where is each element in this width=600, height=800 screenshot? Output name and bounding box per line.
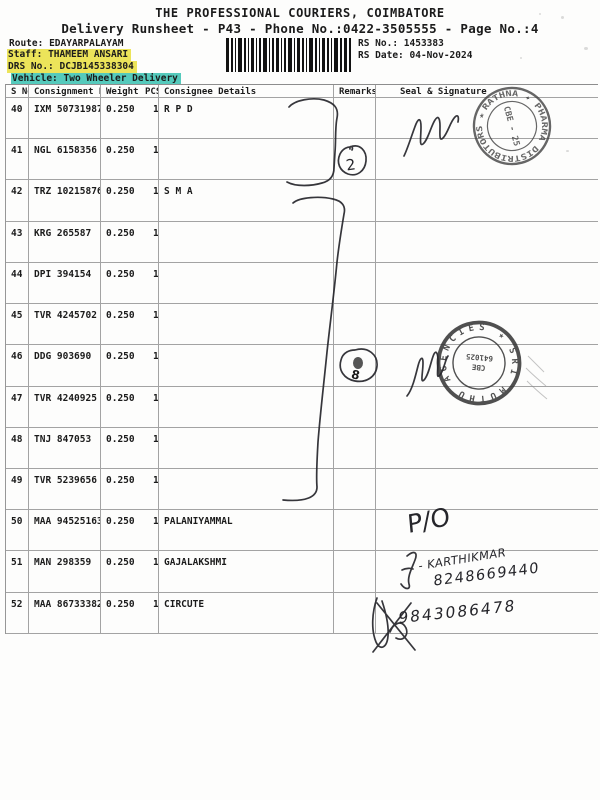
weight-value: 0.250 (106, 557, 135, 568)
cell-consignment-no: DDG 903690 (29, 345, 101, 385)
weight-value: 0.250 (106, 516, 135, 527)
cell-weight-pcs: 0.2501 (101, 98, 159, 138)
cell-weight-pcs: 0.2501 (101, 428, 159, 468)
cell-consignee-details (159, 428, 334, 468)
cell-remarks (334, 593, 376, 633)
cell-weight-pcs: 0.2501 (101, 263, 159, 303)
cell-consignment-no: TVR 5239656 (29, 469, 101, 509)
rs-no-value: 1453383 (404, 38, 444, 49)
scan-speck (539, 13, 541, 15)
cell-s-no: 45 (6, 304, 29, 344)
cell-s-no: 50 (6, 510, 29, 550)
cell-remarks (334, 263, 376, 303)
cell-consignee-details: S M A (159, 180, 334, 220)
cell-remarks (334, 551, 376, 591)
cell-s-no: 42 (6, 180, 29, 220)
rs-no-label: RS No.: (358, 38, 398, 49)
cell-seal-signature (376, 263, 597, 303)
staff-line: Staff: THAMEEM ANSARI (7, 49, 131, 60)
cell-consignment-no: TRZ 102158768 (29, 180, 101, 220)
header-consignment-no: Consignment No (29, 85, 101, 97)
cell-s-no: 52 (6, 593, 29, 633)
cell-s-no: 40 (6, 98, 29, 138)
pcs-value: 1 (153, 557, 159, 568)
cell-consignment-no: NGL 6158356 (29, 139, 101, 179)
pcs-value: 1 (153, 393, 159, 404)
cell-consignment-no: DPI 394154 (29, 263, 101, 303)
vehicle-highlight: Vehicle: Two Wheeler Delivery (11, 73, 181, 85)
table-row: 45TVR 42457020.2501 (6, 304, 598, 345)
weight-value: 0.250 (106, 351, 135, 362)
drs-highlight: DRS No.: DCJB145338304 (7, 61, 137, 73)
cell-consignment-no: IXM 507319870 (29, 98, 101, 138)
cell-weight-pcs: 0.2501 (101, 139, 159, 179)
cell-consignment-no: TNJ 847053 (29, 428, 101, 468)
pcs-value: 1 (153, 310, 159, 321)
cell-consignee-details (159, 345, 334, 385)
cell-seal-signature (376, 345, 597, 385)
header-s-no: S No (6, 85, 29, 97)
drs-value: DCJB145338304 (60, 61, 134, 72)
cell-remarks (334, 469, 376, 509)
scan-speck (566, 150, 569, 152)
route-value: EDAYARPALAYAM (49, 38, 123, 49)
cell-consignee-details (159, 222, 334, 262)
weight-value: 0.250 (106, 475, 135, 486)
cell-weight-pcs: 0.2501 (101, 510, 159, 550)
weight-value: 0.250 (106, 145, 135, 156)
cell-s-no: 48 (6, 428, 29, 468)
rs-date-line: RS Date: 04-Nov-2024 (358, 50, 472, 61)
cell-consignee-details (159, 139, 334, 179)
weight-value: 0.250 (106, 269, 135, 280)
weight-value: 0.250 (106, 434, 135, 445)
vehicle-line: Vehicle: Two Wheeler Delivery (11, 73, 181, 84)
cell-weight-pcs: 0.2501 (101, 593, 159, 633)
scan-speck (561, 16, 564, 19)
pcs-value: 1 (153, 186, 159, 197)
route-line: Route: EDAYARPALAYAM (9, 38, 123, 49)
table-row: 47TVR 42409250.2501 (6, 387, 598, 428)
table-body: 40IXM 5073198700.2501R P D41NGL 61583560… (6, 98, 598, 634)
scan-speck (584, 47, 588, 50)
rs-no-line: RS No.: 1453383 (358, 38, 444, 49)
cell-consignee-details: R P D (159, 98, 334, 138)
cell-seal-signature (376, 304, 597, 344)
drs-label: DRS No.: (8, 61, 54, 72)
page-subtitle: Delivery Runsheet - P43 - Phone No.:0422… (0, 21, 600, 36)
weight-value: 0.250 (106, 186, 135, 197)
scan-speck (520, 57, 522, 59)
cell-consignee-details (159, 304, 334, 344)
cell-remarks (334, 304, 376, 344)
weight-value: 0.250 (106, 104, 135, 115)
table-row: 46DDG 9036900.2501 (6, 345, 598, 386)
cell-seal-signature (376, 180, 597, 220)
cell-remarks (334, 387, 376, 427)
rs-date-value: 04-Nov-2024 (410, 50, 473, 61)
cell-consignment-no: MAA 945251631 (29, 510, 101, 550)
cell-weight-pcs: 0.2501 (101, 387, 159, 427)
pcs-value: 1 (153, 516, 159, 527)
cell-seal-signature (376, 387, 597, 427)
table-row: 43KRG 2655870.2501 (6, 222, 598, 263)
staff-label: Staff: (8, 49, 42, 60)
cell-consignment-no: MAN 298359 (29, 551, 101, 591)
table-row: 48TNJ 8470530.2501 (6, 428, 598, 469)
cell-consignee-details: GAJALAKSHMI (159, 551, 334, 591)
cell-remarks (334, 180, 376, 220)
page-title: THE PROFESSIONAL COURIERS, COIMBATORE (0, 6, 600, 20)
drs-line: DRS No.: DCJB145338304 (7, 61, 137, 72)
header-seal-signature: Seal & Signature (376, 85, 597, 97)
cell-consignment-no: TVR 4240925 (29, 387, 101, 427)
pcs-value: 1 (153, 599, 159, 610)
cell-consignee-details: PALANIYAMMAL (159, 510, 334, 550)
header-pcs: PCS (145, 87, 159, 97)
cell-seal-signature (376, 469, 597, 509)
cell-consignee-details (159, 469, 334, 509)
pcs-value: 1 (153, 475, 159, 486)
cell-consignment-no: KRG 265587 (29, 222, 101, 262)
table-row: 44DPI 3941540.2501 (6, 263, 598, 304)
delivery-runsheet-scan: THE PROFESSIONAL COURIERS, COIMBATORE De… (0, 0, 600, 800)
weight-value: 0.250 (106, 228, 135, 239)
cell-consignment-no: MAA 867333829 (29, 593, 101, 633)
weight-value: 0.250 (106, 310, 135, 321)
cell-s-no: 41 (6, 139, 29, 179)
route-label: Route: (9, 38, 43, 49)
cell-weight-pcs: 0.2501 (101, 469, 159, 509)
cell-s-no: 47 (6, 387, 29, 427)
table-header-row: S No Consignment No WeightPCS Consignee … (6, 85, 598, 98)
pcs-value: 1 (153, 351, 159, 362)
cell-consignee-details (159, 263, 334, 303)
table-row: 40IXM 5073198700.2501R P D (6, 98, 598, 139)
table-row: 49TVR 52396560.2501 (6, 469, 598, 510)
cell-weight-pcs: 0.2501 (101, 304, 159, 344)
cell-consignee-details (159, 387, 334, 427)
cell-s-no: 49 (6, 469, 29, 509)
pcs-value: 1 (153, 434, 159, 445)
pcs-value: 1 (153, 228, 159, 239)
cell-remarks (334, 428, 376, 468)
header-consignee-details: Consignee Details (159, 85, 334, 97)
header-weight: Weight (106, 87, 139, 97)
cell-seal-signature (376, 222, 597, 262)
table-row: 41NGL 61583560.2501 (6, 139, 598, 180)
pcs-value: 1 (153, 269, 159, 280)
weight-value: 0.250 (106, 599, 135, 610)
cell-consignee-details: CIRCUTE (159, 593, 334, 633)
vehicle-label: Vehicle: (12, 73, 58, 84)
cell-weight-pcs: 0.2501 (101, 345, 159, 385)
weight-value: 0.250 (106, 393, 135, 404)
table-row: 42TRZ 1021587680.2501S M A (6, 180, 598, 221)
cell-s-no: 43 (6, 222, 29, 262)
barcode (226, 38, 352, 72)
cell-weight-pcs: 0.2501 (101, 551, 159, 591)
cell-seal-signature (376, 98, 597, 138)
cell-weight-pcs: 0.2501 (101, 222, 159, 262)
cell-remarks (334, 222, 376, 262)
cell-remarks (334, 98, 376, 138)
pcs-value: 1 (153, 104, 159, 115)
cell-consignment-no: TVR 4245702 (29, 304, 101, 344)
rs-date-label: RS Date: (358, 50, 404, 61)
cell-s-no: 51 (6, 551, 29, 591)
vehicle-value: Two Wheeler Delivery (64, 73, 178, 84)
cell-remarks (334, 510, 376, 550)
cell-remarks (334, 139, 376, 179)
staff-highlight: Staff: THAMEEM ANSARI (7, 49, 131, 61)
pcs-value: 1 (153, 145, 159, 156)
cell-s-no: 46 (6, 345, 29, 385)
header-remarks: Remarks (334, 85, 376, 97)
cell-seal-signature (376, 428, 597, 468)
cell-weight-pcs: 0.2501 (101, 180, 159, 220)
staff-value: THAMEEM ANSARI (48, 49, 128, 60)
table-row: 50MAA 9452516310.2501PALANIYAMMAL (6, 510, 598, 551)
cell-s-no: 44 (6, 263, 29, 303)
cell-remarks (334, 345, 376, 385)
header-weight-pcs: WeightPCS (101, 85, 159, 97)
cell-seal-signature (376, 139, 597, 179)
runsheet-table: S No Consignment No WeightPCS Consignee … (5, 84, 598, 634)
